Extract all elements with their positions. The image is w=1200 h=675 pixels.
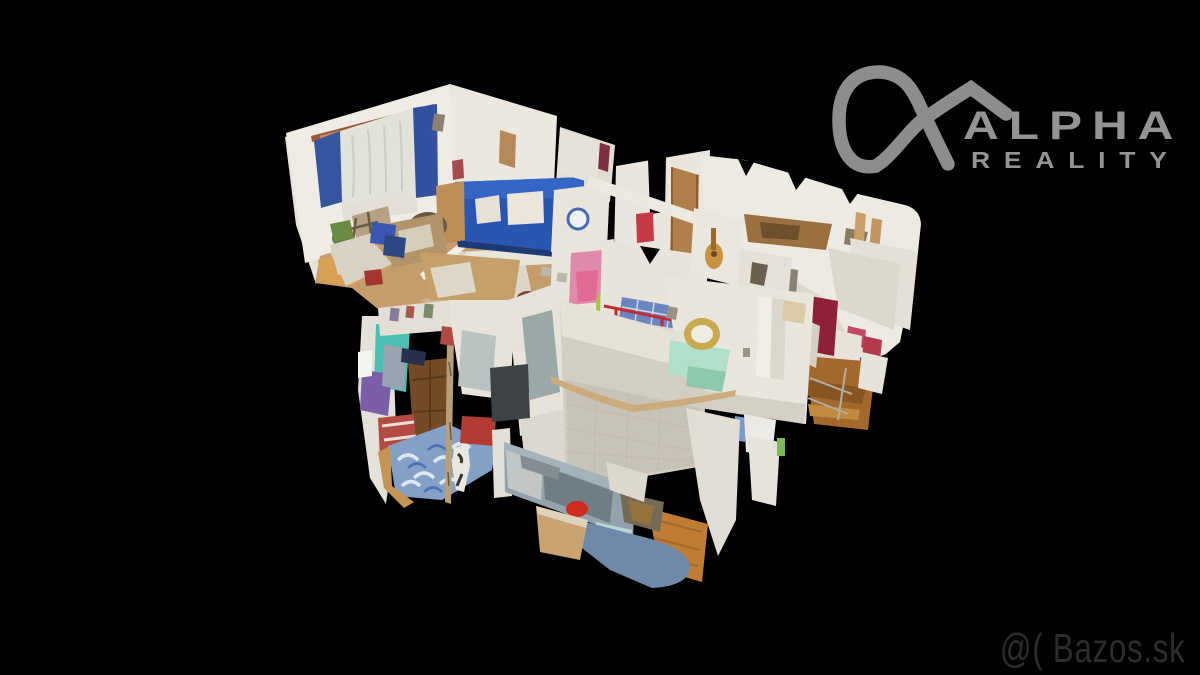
svg-text:ALPHA: ALPHA: [963, 103, 1183, 148]
svg-text:REALITY: REALITY: [971, 149, 1181, 174]
svg-text:@( Bazos.sk: @( Bazos.sk: [1000, 625, 1185, 671]
